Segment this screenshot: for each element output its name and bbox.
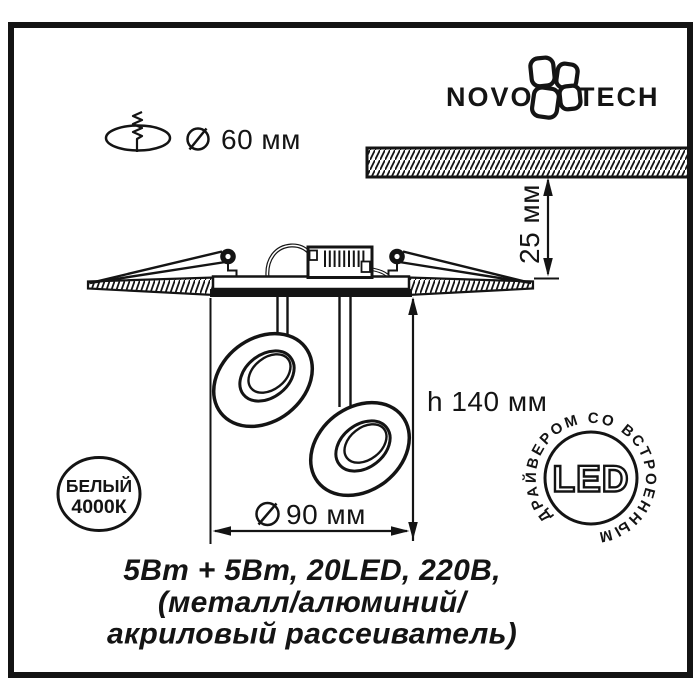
novotech-logo: NOVO TECH bbox=[446, 57, 660, 119]
novotech-spec-sheet: { "brand": { "logo_left": "NOVO", "logo_… bbox=[0, 0, 700, 700]
ceiling-section bbox=[367, 148, 690, 177]
logo-text-right: TECH bbox=[578, 82, 660, 112]
logo-text-left: NOVO bbox=[446, 82, 534, 112]
fixture-drawing bbox=[88, 245, 533, 514]
driver-grill bbox=[325, 251, 363, 268]
spec-line-2: (металл/алюминий/ bbox=[158, 586, 469, 619]
drill-icon bbox=[133, 112, 142, 152]
head-diameter-text: 90 мм bbox=[286, 499, 366, 530]
color-temp-line1: БЕЛЫЙ bbox=[66, 475, 132, 496]
fixture-base bbox=[210, 289, 412, 297]
diameter-symbol-icon bbox=[257, 503, 279, 525]
arrow-right-icon bbox=[391, 526, 410, 536]
head-diameter-dimension: 90 мм bbox=[213, 499, 410, 536]
right-led-ring-head bbox=[292, 383, 427, 514]
arrow-left-icon bbox=[213, 526, 232, 536]
recess-depth-text: 25 мм bbox=[514, 184, 545, 264]
recess-depth-dimension: 25 мм bbox=[514, 178, 559, 279]
arrow-up-icon bbox=[408, 297, 418, 315]
left-led-ring-head bbox=[195, 314, 330, 445]
technical-drawing: 60 мм NOVO TECH 25 мм bbox=[0, 0, 700, 700]
logo-flower-icon bbox=[530, 57, 582, 119]
led-icon: LED bbox=[553, 459, 630, 500]
spec-line-3: акриловый рассеиватель) bbox=[107, 618, 517, 651]
mounting-hole-icon bbox=[106, 112, 170, 152]
hole-diameter-text: 60 мм bbox=[221, 124, 301, 155]
diameter-symbol-icon bbox=[188, 129, 209, 150]
color-temp-badge: БЕЛЫЙ 4000К bbox=[58, 458, 140, 531]
spec-line-1: 5Вт + 5Вт, 20LED, 220В, bbox=[123, 554, 501, 587]
spec-text-block: 5Вт + 5Вт, 20LED, 220В, (металл/алюминий… bbox=[107, 554, 517, 651]
color-temp-line2: 4000К bbox=[71, 496, 126, 518]
led-driver-box bbox=[308, 247, 372, 278]
hole-diameter-label: 60 мм bbox=[188, 124, 301, 155]
height-text: h 140 мм bbox=[427, 386, 547, 417]
arrow-down-icon bbox=[408, 522, 418, 540]
led-badge: LED ДРАЙВЕРОМ СО ВСТРОЕННЫМ bbox=[522, 410, 659, 546]
